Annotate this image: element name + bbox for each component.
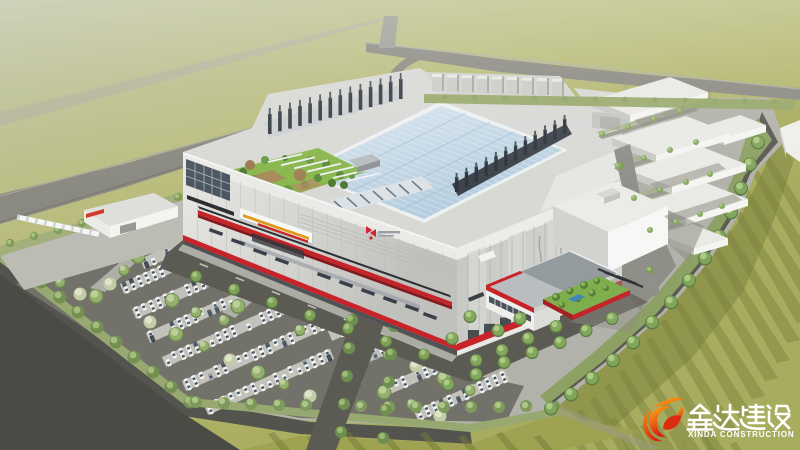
svg-text:XINDA CONSTRUCTION: XINDA CONSTRUCTION <box>688 430 795 439</box>
